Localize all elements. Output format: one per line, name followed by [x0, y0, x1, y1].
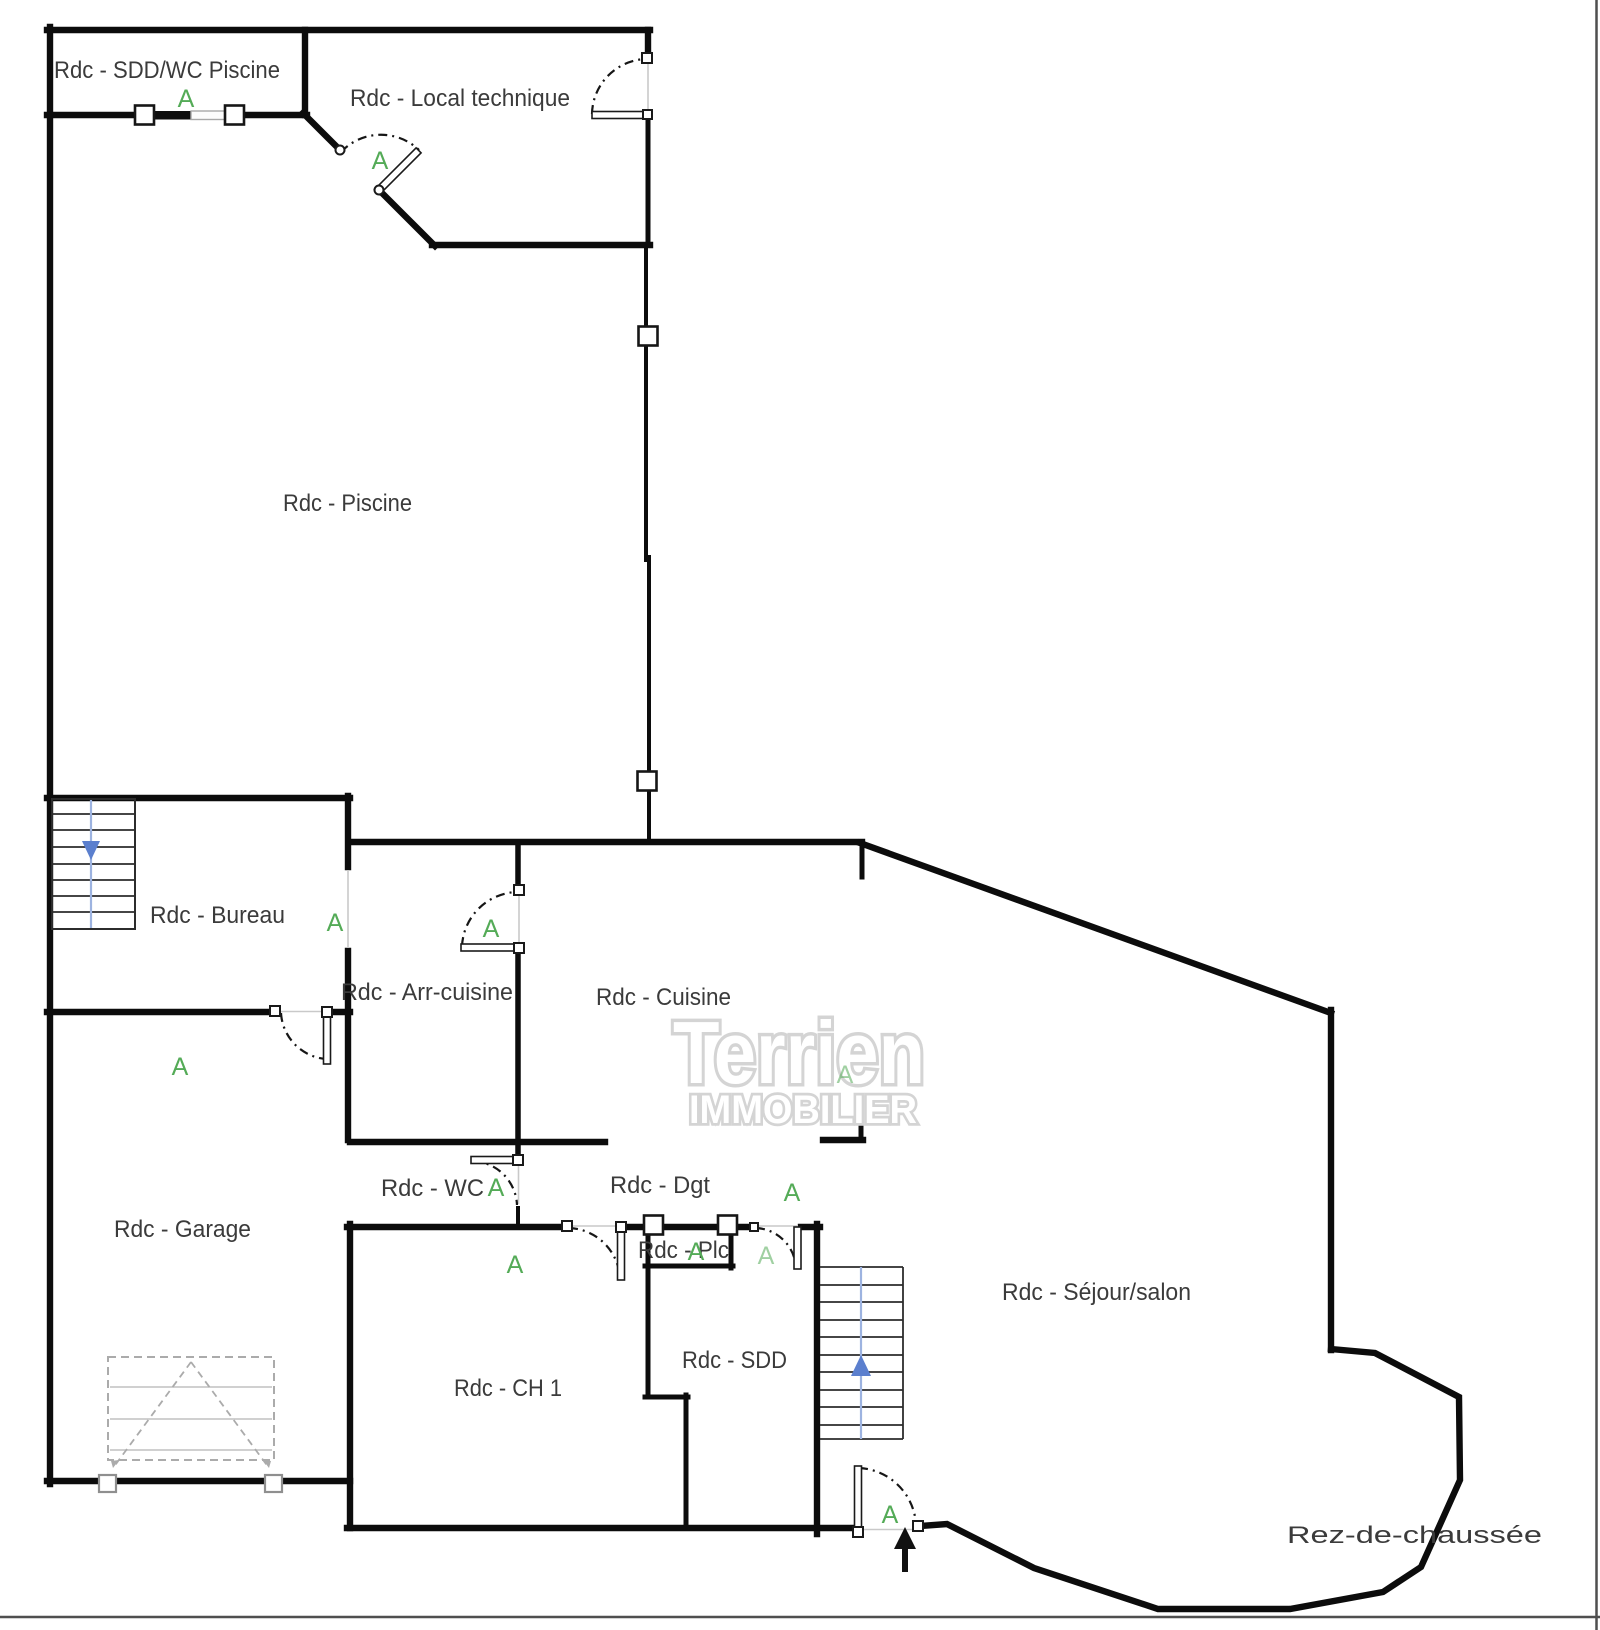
svg-text:A: A — [507, 1251, 524, 1279]
svg-text:A: A — [372, 147, 389, 175]
svg-text:A: A — [483, 915, 500, 943]
svg-text:A: A — [758, 1242, 775, 1270]
svg-text:Rdc - CH 1: Rdc - CH 1 — [454, 1375, 562, 1402]
svg-text:A: A — [327, 909, 344, 937]
svg-text:Rdc - WC: Rdc - WC — [381, 1175, 484, 1202]
svg-text:Rdc - Cuisine: Rdc - Cuisine — [596, 984, 731, 1011]
svg-text:A: A — [784, 1179, 801, 1207]
svg-text:Rdc - Dgt: Rdc - Dgt — [610, 1172, 710, 1199]
svg-text:A: A — [172, 1053, 189, 1081]
svg-text:Rdc - Séjour/salon: Rdc - Séjour/salon — [1002, 1279, 1191, 1306]
svg-text:A: A — [882, 1501, 899, 1529]
svg-text:A: A — [688, 1238, 705, 1266]
svg-text:Rdc - Plc: Rdc - Plc — [638, 1237, 729, 1264]
svg-text:A: A — [488, 1174, 505, 1202]
svg-text:Rdc - SDD: Rdc - SDD — [682, 1347, 787, 1374]
svg-text:A: A — [178, 85, 195, 113]
svg-text:Rdc - Arr-cuisine: Rdc - Arr-cuisine — [341, 979, 513, 1006]
svg-text:Rdc - Bureau: Rdc - Bureau — [150, 902, 285, 929]
svg-text:Rdc - SDD/WC Piscine: Rdc - SDD/WC Piscine — [54, 57, 280, 84]
svg-text:Rez-de-chaussée: Rez-de-chaussée — [1287, 1522, 1542, 1549]
svg-text:Rdc - Garage: Rdc - Garage — [114, 1216, 251, 1243]
svg-text:A: A — [837, 1061, 854, 1089]
svg-text:IMMOBILIER: IMMOBILIER — [689, 1088, 917, 1132]
svg-text:Rdc - Piscine: Rdc - Piscine — [283, 490, 412, 517]
svg-text:Rdc - Local technique: Rdc - Local technique — [350, 85, 570, 112]
